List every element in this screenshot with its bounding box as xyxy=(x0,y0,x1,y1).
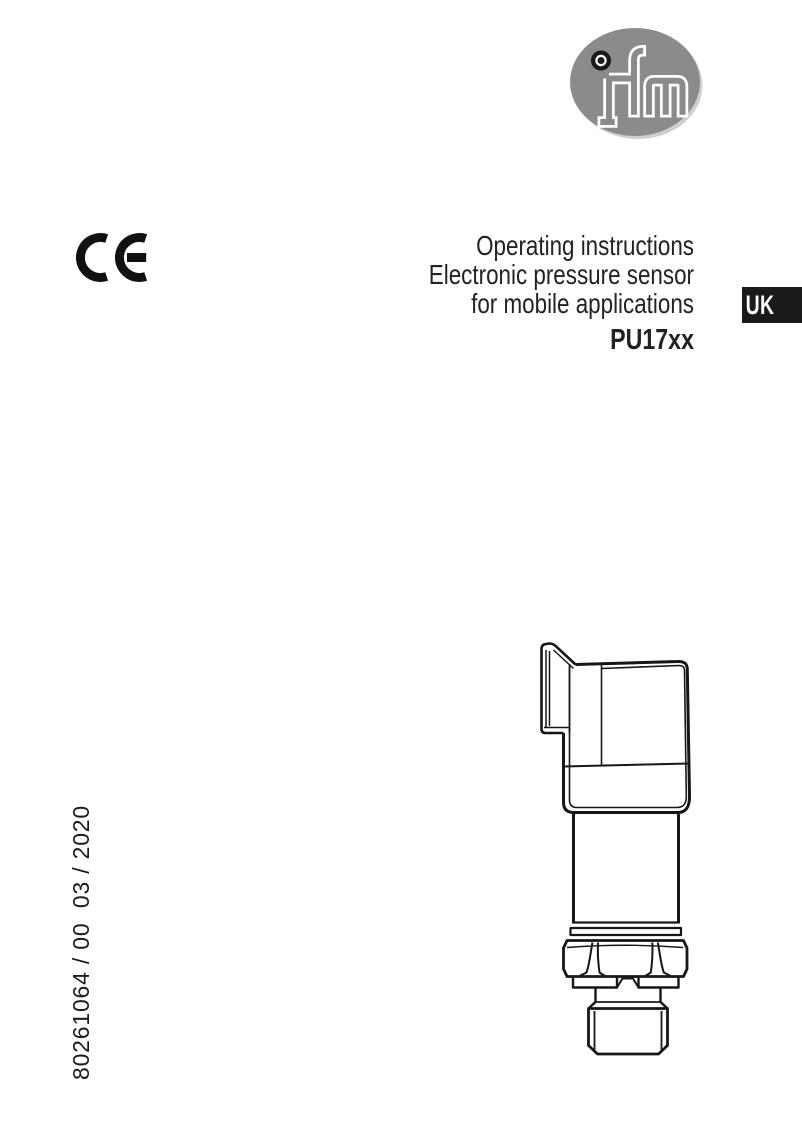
title-block: Operating instructions Electronic pressu… xyxy=(339,231,694,355)
title-line-2: Electronic pressure sensor xyxy=(339,260,694,289)
title-line-3: for mobile applications xyxy=(339,289,694,318)
sensor-thread-stud xyxy=(589,1009,668,1055)
language-badge-label: UK xyxy=(742,290,774,321)
sensor-body xyxy=(574,814,679,924)
pressure-sensor-illustration xyxy=(530,630,705,1065)
manual-cover-page: Operating instructions Electronic pressu… xyxy=(0,0,802,1130)
title-line-1: Operating instructions xyxy=(339,231,694,260)
document-number-vertical: 80261064 / 00 03 / 2020 xyxy=(66,800,96,1080)
ifm-logo xyxy=(560,18,720,150)
model-number: PU17xx xyxy=(339,326,694,355)
ce-mark-icon xyxy=(65,225,160,290)
sensor-housing xyxy=(564,661,690,812)
language-badge-uk: UK xyxy=(742,287,802,323)
ifm-dot xyxy=(591,51,611,71)
